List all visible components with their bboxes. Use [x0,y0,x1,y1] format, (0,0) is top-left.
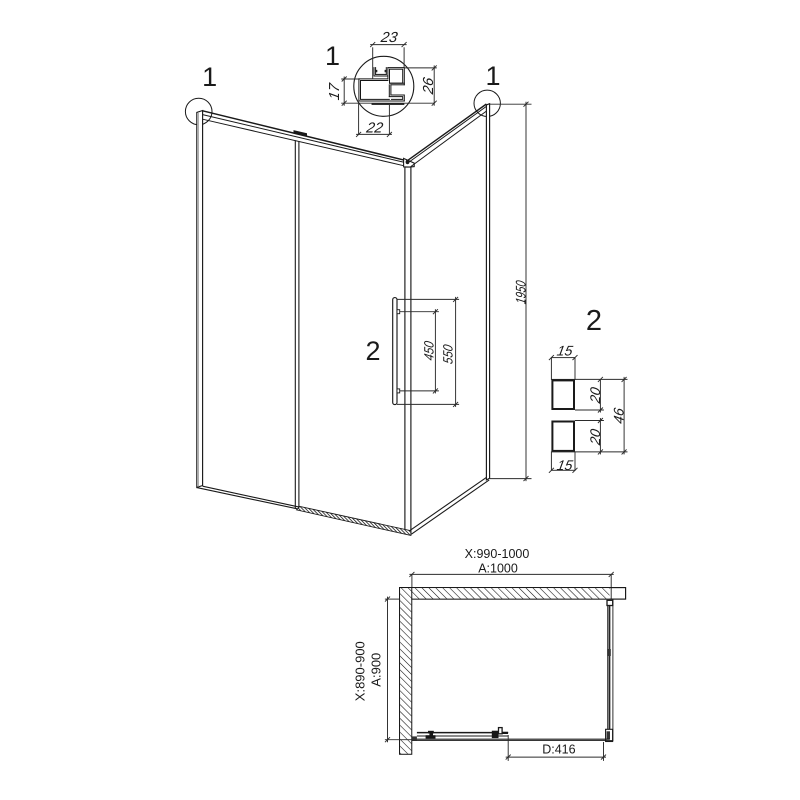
svg-text:46: 46 [611,406,627,425]
svg-text:X:890-900: X:890-900 [353,641,368,701]
svg-text:550: 550 [441,343,456,365]
svg-text:20: 20 [587,427,603,447]
svg-text:15: 15 [556,457,575,473]
svg-text:23: 23 [379,30,399,46]
svg-text:20: 20 [587,386,603,406]
svg-text:1: 1 [485,61,500,91]
svg-text:15: 15 [556,343,575,359]
svg-text:X:990-1000: X:990-1000 [465,547,530,561]
svg-text:2: 2 [365,336,380,366]
svg-text:22: 22 [364,121,384,137]
svg-text:450: 450 [422,340,437,362]
svg-text:1950: 1950 [513,279,529,305]
svg-text:1: 1 [202,62,217,92]
svg-text:2: 2 [586,305,602,337]
svg-text:D:416: D:416 [542,743,575,757]
svg-text:A:1000: A:1000 [478,562,518,576]
svg-text:1: 1 [325,41,340,71]
svg-text:A:900: A:900 [369,653,384,687]
